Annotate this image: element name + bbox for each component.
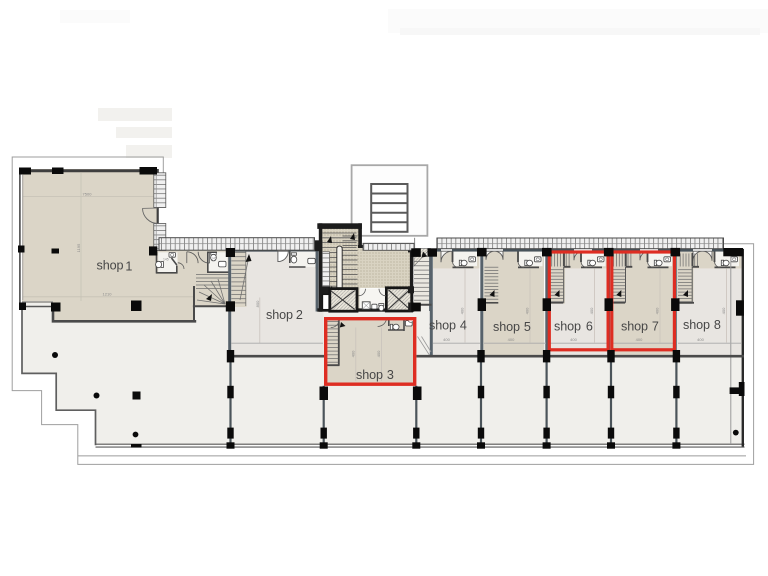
svg-text:400: 400 xyxy=(721,307,726,314)
svg-text:400: 400 xyxy=(350,350,355,357)
svg-text:400: 400 xyxy=(655,307,660,314)
svg-text:shop8: shop8 xyxy=(683,318,721,332)
svg-text:1210: 1210 xyxy=(103,291,113,296)
svg-text:7500: 7500 xyxy=(83,192,93,197)
svg-text:400: 400 xyxy=(697,337,704,342)
svg-text:400: 400 xyxy=(570,337,577,342)
svg-text:400: 400 xyxy=(589,307,594,314)
svg-text:145: 145 xyxy=(211,257,217,261)
svg-text:shop1: shop1 xyxy=(97,259,133,274)
svg-text:400: 400 xyxy=(508,337,515,342)
svg-text:400: 400 xyxy=(636,337,643,342)
svg-text:shop3: shop3 xyxy=(356,368,394,382)
svg-text:400: 400 xyxy=(460,307,465,314)
svg-text:shop2: shop2 xyxy=(266,308,303,322)
svg-text:400: 400 xyxy=(443,337,450,342)
svg-text:shop4: shop4 xyxy=(429,319,467,333)
svg-text:800: 800 xyxy=(255,300,260,307)
svg-text:145: 145 xyxy=(163,257,169,261)
svg-text:400: 400 xyxy=(376,350,381,357)
svg-text:1195: 1195 xyxy=(76,243,81,252)
svg-text:shop7: shop7 xyxy=(621,320,659,334)
svg-text:400: 400 xyxy=(525,307,530,314)
svg-text:shop6: shop6 xyxy=(554,320,593,334)
svg-text:shop5: shop5 xyxy=(493,320,531,334)
